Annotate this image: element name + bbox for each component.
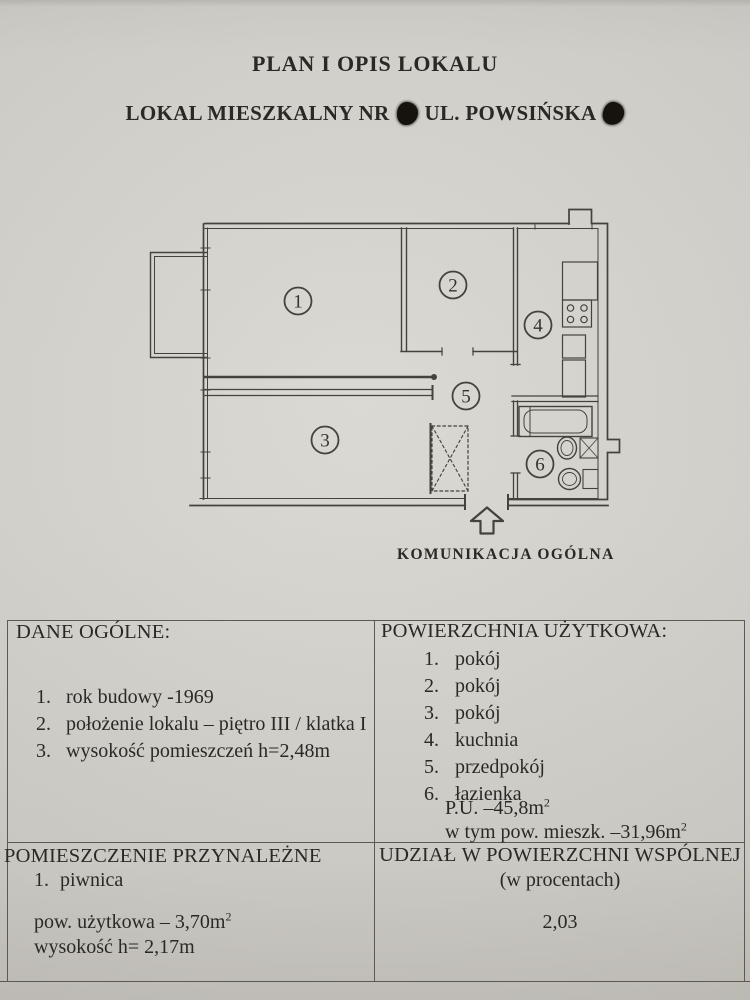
cellar-height: wysokość h= 2,17m (34, 936, 195, 959)
bathtub (519, 407, 592, 437)
room-number-6: 6 (535, 455, 545, 476)
room-number-2: 2 (448, 276, 458, 297)
floor-plan: 1 2 3 4 5 6 (140, 190, 640, 535)
table-border-bottom (0, 981, 750, 982)
share-percentage-value: 2,03 (375, 911, 745, 934)
room-label-4: 4 (525, 312, 552, 339)
room-number-5: 5 (461, 387, 471, 408)
list-number: 1. (34, 869, 49, 892)
redaction-blob-number (397, 102, 418, 125)
list-number: 1. (36, 686, 51, 709)
superscript: 2 (225, 909, 231, 923)
list-number: 4. (424, 729, 439, 752)
balcony (151, 253, 208, 358)
section-header-powierzchnia: POWIERZCHNIA UŻYTKOWA: (381, 620, 667, 643)
superscript: 2 (544, 795, 550, 809)
plan-caption: KOMUNIKACJA OGÓLNA (397, 546, 615, 564)
room-label-1: 1 (285, 288, 312, 315)
cellar-area: pow. użytkowa – 3,70m2 (34, 911, 231, 934)
table-border-left (7, 620, 8, 981)
room-label-3: 3 (312, 427, 339, 454)
floor-plan-walls (151, 210, 620, 510)
redaction-blob-street-number (601, 100, 627, 127)
total-usable-area: P.U. –45,8m2 (445, 797, 550, 820)
residential-area: w tym pow. mieszk. –31,96m2 (445, 821, 687, 844)
list-number: 5. (424, 756, 439, 779)
list-number: 2. (424, 675, 439, 698)
room-label-6: 6 (527, 451, 554, 478)
washbasin (558, 437, 599, 459)
list-item: pokój (455, 648, 501, 671)
cellar-area-text: pow. użytkowa – 3,70m (34, 911, 225, 933)
list-item: rok budowy -1969 (66, 686, 214, 709)
residential-area-text: w tym pow. mieszk. –31,96m (445, 821, 681, 843)
wardrobe (431, 424, 469, 493)
subtitle-street: UL. POWSIŃSKA (425, 101, 597, 126)
section-header-udzial-line2: (w procentach) (375, 869, 745, 892)
room-label-2: 2 (440, 272, 467, 299)
toilet (559, 469, 599, 490)
superscript: 2 (681, 819, 687, 833)
list-number: 1. (424, 648, 439, 671)
entrance-arrow-icon (471, 508, 503, 534)
room-number-3: 3 (320, 431, 330, 452)
section-header-dane-ogolne: DANE OGÓLNE: (16, 621, 170, 644)
list-item: piwnica (60, 869, 123, 892)
list-item: wysokość pomieszczeń h=2,48m (66, 740, 330, 763)
document-subtitle: LOKAL MIESZKALNY NR UL. POWSIŃSKA (0, 101, 750, 126)
list-item: kuchnia (455, 729, 518, 752)
room-label-5: 5 (453, 383, 480, 410)
list-item: pokój (455, 702, 501, 725)
document-title: PLAN I OPIS LOKALU (0, 51, 750, 77)
subtitle-prefix: LOKAL MIESZKALNY NR (126, 101, 390, 126)
total-usable-area-text: P.U. –45,8m (445, 797, 544, 819)
section-header-przynalezne: POMIESZCZENIE PRZYNALEŻNE (4, 845, 322, 868)
list-number: 2. (36, 713, 51, 736)
list-number: 3. (36, 740, 51, 763)
list-item: pokój (455, 675, 501, 698)
list-item: położenie lokalu – piętro III / klatka I (66, 713, 366, 736)
room-number-4: 4 (533, 316, 543, 337)
room-number-1: 1 (293, 292, 303, 313)
list-number: 3. (424, 702, 439, 725)
section-header-udzial-line1: UDZIAŁ W POWIERZCHNI WSPÓLNEJ (375, 844, 745, 867)
kitchen-counter-and-stove (563, 262, 598, 397)
list-item: przedpokój (455, 756, 545, 779)
list-number: 6. (424, 783, 439, 806)
